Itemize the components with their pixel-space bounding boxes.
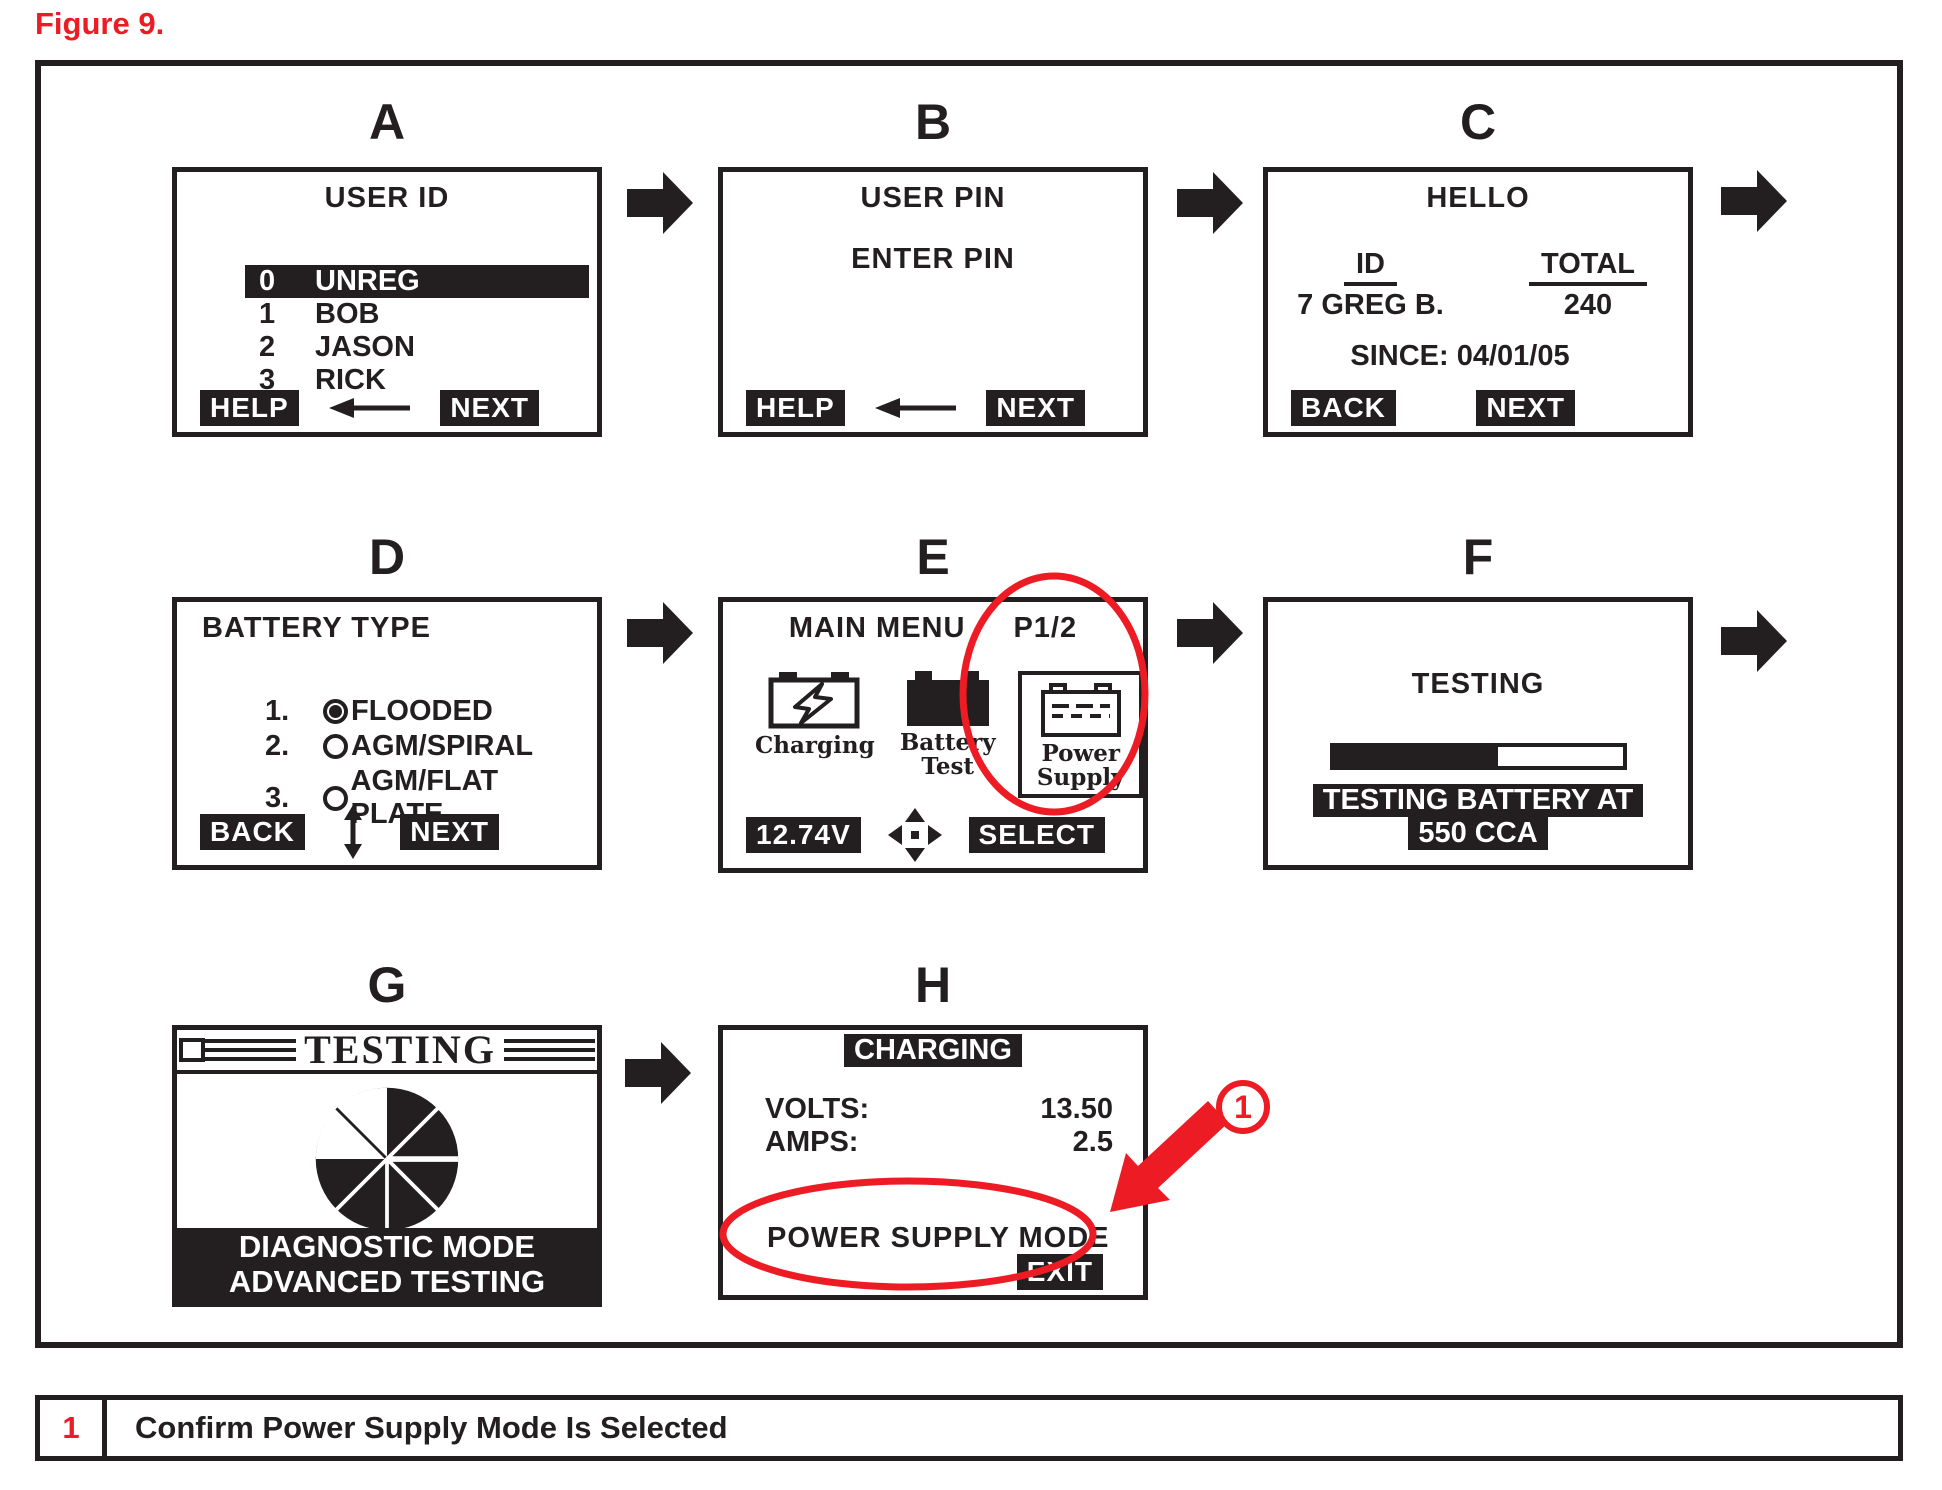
back-button[interactable]: BACK [1291,390,1396,426]
radio-selected-icon[interactable] [323,699,348,724]
screen-e: MAIN MENU P1/2 Charging Battery [718,597,1148,873]
figure-label: Figure 9. [35,6,164,42]
id-value: 7 GREG B. [1283,289,1458,322]
menu-item-battery-test[interactable]: Battery Test [899,671,996,779]
up-down-arrow-icon [339,805,367,859]
amps-value: 2.5 [1073,1126,1113,1159]
screen-b-title: USER PIN [723,182,1143,215]
id-header: ID [1344,248,1397,286]
option-num: 2. [265,730,323,763]
power-supply-icon [1041,683,1121,737]
screen-e-title: MAIN MENU [789,612,966,645]
footer-line2: ADVANCED TESTING [177,1264,597,1299]
screen-c-letter: C [1263,93,1693,151]
screen-b: USER PIN ENTER PIN HELP NEXT [718,167,1148,437]
menu-item-label: Supply [1028,766,1133,790]
menu-item-charging[interactable]: Charging [755,671,873,758]
screen-a-title: USER ID [177,182,597,215]
total-value: 240 [1513,289,1663,322]
amps-label: AMPS: [765,1126,858,1159]
voltage-button[interactable]: 12.74V [746,817,861,853]
progress-bar [1330,743,1627,770]
next-button[interactable]: NEXT [440,390,539,426]
page-indicator: P1/2 [1013,612,1077,645]
user-list: 0 UNREG 1 BOB 2 JASON 3 RICK [245,265,589,397]
user-row-unreg[interactable]: 0 UNREG [245,265,589,298]
screen-d-letter: D [172,528,602,586]
exit-button[interactable]: EXIT [1017,1254,1103,1290]
help-button[interactable]: HELP [746,390,845,426]
rule-lines-right [504,1039,595,1061]
rule-lines-left [205,1039,296,1061]
next-button[interactable]: NEXT [400,814,499,850]
menu-item-label: Battery [899,731,996,755]
footer-line1: DIAGNOSTIC MODE [177,1229,597,1264]
screen-f-letter: F [1263,528,1693,586]
spinner-icon [311,1084,463,1234]
caption-text: Confirm Power Supply Mode Is Selected [107,1400,1898,1456]
help-button[interactable]: HELP [200,390,299,426]
menu-item-label: Power [1028,742,1133,766]
screen-b-letter: B [718,93,1148,151]
option-label: FLOODED [351,695,493,728]
testing-status-line1: TESTING BATTERY AT [1313,784,1643,817]
user-name: UNREG [315,265,420,298]
user-name: JASON [315,331,415,364]
user-num: 0 [245,265,315,298]
window-square-icon [179,1038,205,1062]
charging-readings: VOLTS: 13.50 AMPS: 2.5 [765,1093,1113,1159]
screen-c-title: HELLO [1268,182,1688,215]
screen-d: BATTERY TYPE 1. FLOODED 2. AGM/SPIRAL 3.… [172,597,602,870]
battery-test-icon [907,671,989,726]
testing-title-bar: TESTING [177,1030,597,1067]
flow-arrow-icon [1177,172,1243,234]
power-supply-mode-text: POWER SUPPLY MODE [767,1222,1110,1255]
screen-g-title: TESTING [304,1033,496,1067]
session-summary: ID 7 GREG B. TOTAL 240 [1283,248,1663,322]
user-num: 1 [245,298,315,331]
screen-h-letter: H [718,956,1148,1014]
menu-item-power-supply[interactable]: Power Supply [1018,671,1143,798]
user-row-jason[interactable]: 2 JASON [245,331,589,364]
user-num: 2 [245,331,315,364]
user-name: BOB [315,298,379,331]
flow-arrow-icon [627,602,693,664]
option-num: 1. [265,695,323,728]
screen-d-title: BATTERY TYPE [202,612,597,645]
screen-g-letter: G [172,956,602,1014]
back-arrow-icon [873,395,958,421]
option-flooded[interactable]: 1. FLOODED [265,695,597,728]
enter-pin-prompt: ENTER PIN [723,243,1143,276]
radio-unselected-icon[interactable] [323,734,348,759]
option-agm-spiral[interactable]: 2. AGM/SPIRAL [265,730,597,763]
menu-item-label: Test [899,755,996,779]
screen-a: USER ID 0 UNREG 1 BOB 2 JASON 3 RICK HEL… [172,167,602,437]
screen-f-title: TESTING [1268,668,1688,701]
flow-arrow-icon [1177,602,1243,664]
flow-arrow-icon [627,172,693,234]
menu-item-label: Charging [755,734,873,758]
screen-e-letter: E [718,528,1148,586]
flow-arrow-icon [625,1042,691,1104]
progress-fill [1334,747,1499,766]
screen-f: TESTING TESTING BATTERY AT 550 CCA [1263,597,1693,870]
figure-page: Figure 9. A B C D E F G H USER ID 0 UNRE… [0,0,1942,1490]
total-header: TOTAL [1529,248,1647,286]
caption-number: 1 [40,1400,107,1456]
four-way-arrow-icon [888,808,942,862]
next-button[interactable]: NEXT [1476,390,1575,426]
testing-status-line2: 550 CCA [1408,817,1547,850]
user-row-bob[interactable]: 1 BOB [245,298,589,331]
charging-battery-icon [768,671,860,729]
caption-table: 1 Confirm Power Supply Mode Is Selected [35,1395,1903,1461]
volts-label: VOLTS: [765,1093,869,1126]
volts-value: 13.50 [1040,1093,1113,1126]
screen-c: HELLO ID 7 GREG B. TOTAL 240 SINCE: 04/0… [1263,167,1693,437]
screen-h: CHARGING VOLTS: 13.50 AMPS: 2.5 POWER SU… [718,1025,1148,1300]
select-button[interactable]: SELECT [969,817,1105,853]
flow-arrow-icon [1721,170,1787,232]
back-button[interactable]: BACK [200,814,305,850]
since-date: SINCE: 04/01/05 [1268,340,1652,373]
back-arrow-icon [327,395,412,421]
charging-title-badge: CHARGING [844,1034,1022,1067]
screen-g: TESTING DIAGNOSTIC MODE ADVANCED TESTING [172,1025,602,1307]
screen-a-letter: A [172,93,602,151]
option-label: AGM/SPIRAL [351,730,533,763]
next-button[interactable]: NEXT [986,390,1085,426]
diagnostic-mode-banner: DIAGNOSTIC MODE ADVANCED TESTING [177,1228,597,1302]
flow-arrow-icon [1721,610,1787,672]
